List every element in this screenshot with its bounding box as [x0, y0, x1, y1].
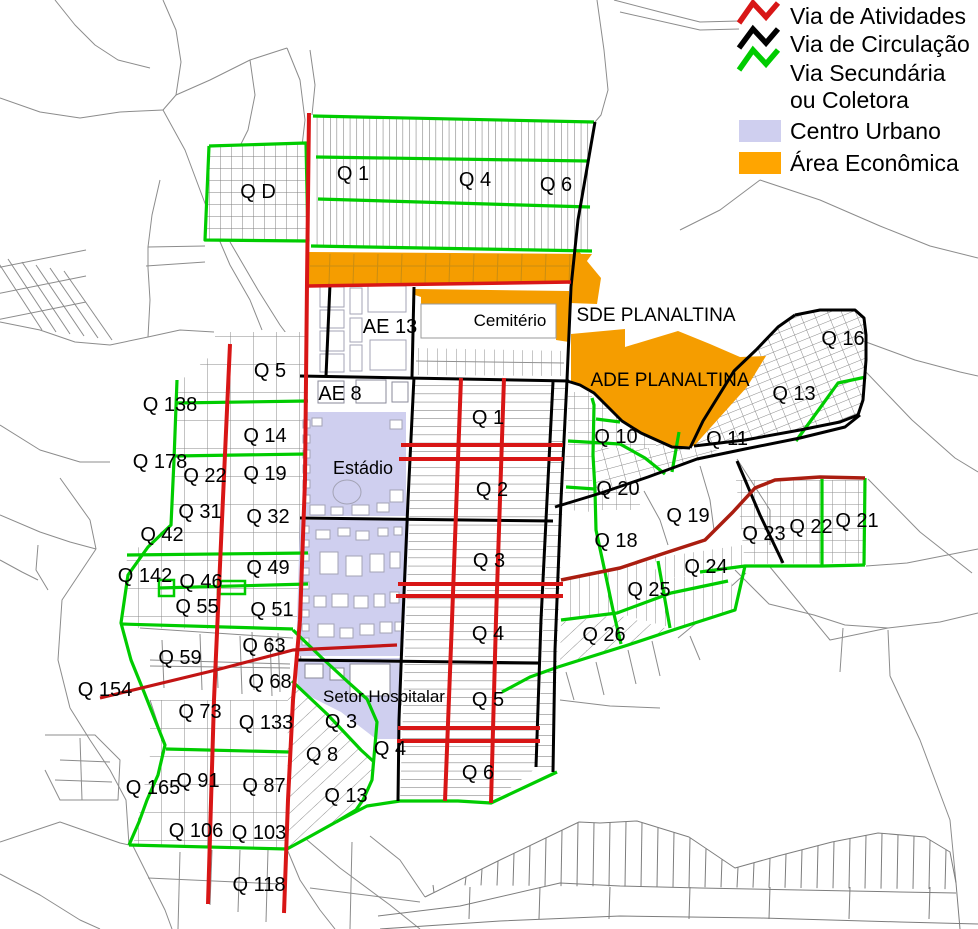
svg-text:Q 73: Q 73: [178, 701, 221, 723]
svg-text:Q 178: Q 178: [133, 451, 187, 473]
svg-text:Q 68: Q 68: [248, 671, 291, 693]
svg-text:Q 5: Q 5: [472, 689, 504, 711]
svg-text:Q 11: Q 11: [706, 428, 748, 450]
svg-text:Q 13: Q 13: [772, 383, 815, 405]
svg-text:Q 59: Q 59: [158, 647, 201, 669]
svg-text:Centro Urbano: Centro Urbano: [790, 118, 941, 144]
svg-text:SDE PLANALTINA: SDE PLANALTINA: [576, 305, 735, 326]
svg-text:Q 91: Q 91: [176, 770, 219, 792]
svg-text:Q 42: Q 42: [140, 524, 183, 546]
svg-text:ou Coletora: ou Coletora: [790, 87, 909, 113]
svg-text:Q 49: Q 49: [246, 557, 289, 579]
svg-text:Área Econômica: Área Econômica: [790, 150, 959, 176]
svg-text:Via de Circulação: Via de Circulação: [790, 31, 970, 57]
svg-text:Q 19: Q 19: [243, 463, 286, 485]
svg-text:Q 51: Q 51: [250, 599, 293, 621]
svg-text:Q 24: Q 24: [684, 556, 727, 578]
svg-text:Q 118: Q 118: [233, 874, 286, 896]
svg-text:Q 1: Q 1: [337, 163, 369, 185]
svg-text:Q 6: Q 6: [462, 762, 494, 784]
svg-text:AE 8: AE 8: [318, 383, 361, 405]
svg-text:Q 142: Q 142: [118, 565, 172, 587]
svg-text:Q 5: Q 5: [254, 360, 286, 382]
svg-text:Via de Atividades: Via de Atividades: [790, 3, 966, 29]
svg-text:Q 3: Q 3: [325, 711, 357, 733]
svg-text:Q 103: Q 103: [232, 822, 286, 844]
svg-text:Q 32: Q 32: [246, 506, 289, 528]
svg-text:Q 165: Q 165: [126, 777, 180, 799]
svg-text:Q 4: Q 4: [459, 169, 491, 191]
svg-text:Q 26: Q 26: [582, 624, 625, 646]
svg-text:Q 21: Q 21: [835, 510, 878, 532]
svg-text:Q 4: Q 4: [374, 738, 406, 760]
svg-text:Q 25: Q 25: [627, 579, 670, 601]
svg-text:Q 20: Q 20: [596, 478, 639, 500]
svg-text:Q 46: Q 46: [179, 571, 222, 593]
svg-text:Q 22: Q 22: [183, 465, 226, 487]
svg-text:Q 133: Q 133: [239, 712, 293, 734]
svg-text:Q 3: Q 3: [473, 550, 505, 572]
svg-text:Via Secundária: Via Secundária: [790, 60, 946, 86]
svg-text:Q 18: Q 18: [594, 530, 637, 552]
svg-text:Q 2: Q 2: [476, 479, 508, 501]
svg-text:Q 1: Q 1: [472, 407, 504, 429]
svg-text:Q 87: Q 87: [242, 775, 285, 797]
svg-text:Q 13: Q 13: [324, 785, 367, 807]
svg-text:Q 22: Q 22: [789, 516, 832, 538]
svg-text:Q 23: Q 23: [742, 523, 785, 545]
svg-text:Q D: Q D: [240, 181, 276, 203]
svg-text:Q 138: Q 138: [143, 394, 197, 416]
svg-text:Q 8: Q 8: [306, 744, 338, 766]
svg-text:Q 6: Q 6: [540, 174, 572, 196]
svg-text:Q 55: Q 55: [175, 596, 218, 618]
svg-text:Q 14: Q 14: [243, 425, 286, 447]
svg-text:Q 31: Q 31: [178, 501, 221, 523]
svg-text:Q 19: Q 19: [666, 505, 709, 527]
svg-text:Setor Hospitalar: Setor Hospitalar: [323, 687, 445, 706]
svg-text:ADE PLANALTINA: ADE PLANALTINA: [590, 370, 749, 391]
svg-text:Estádio: Estádio: [333, 458, 393, 478]
svg-text:Q 106: Q 106: [169, 820, 223, 842]
svg-text:Q 63: Q 63: [242, 635, 285, 657]
svg-text:Q 154: Q 154: [78, 679, 132, 701]
svg-text:Cemitério: Cemitério: [474, 311, 547, 330]
svg-text:Q 16: Q 16: [821, 328, 864, 350]
svg-text:AE 13: AE 13: [363, 316, 417, 338]
svg-text:Q 10: Q 10: [594, 426, 637, 448]
svg-text:Q 4: Q 4: [472, 623, 504, 645]
